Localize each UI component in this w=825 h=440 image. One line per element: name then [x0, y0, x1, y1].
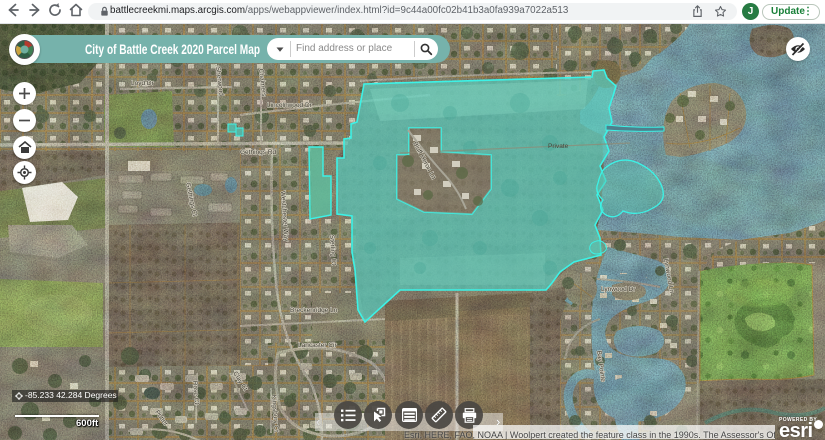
svg-text:Loyd Dr: Loyd Dr	[131, 80, 155, 87]
svg-text:Lancaster Cir: Lancaster Cir	[298, 342, 337, 349]
svg-text:Lynwood Dr: Lynwood Dr	[601, 286, 636, 293]
svg-text:Breckenridge Ln: Breckenridge Ln	[290, 307, 338, 314]
svg-text:Private: Private	[548, 143, 569, 150]
svg-text:Gethings Rd: Gethings Rd	[240, 149, 277, 156]
svg-text:Lincolnwood Dr: Lincolnwood Dr	[267, 102, 313, 109]
